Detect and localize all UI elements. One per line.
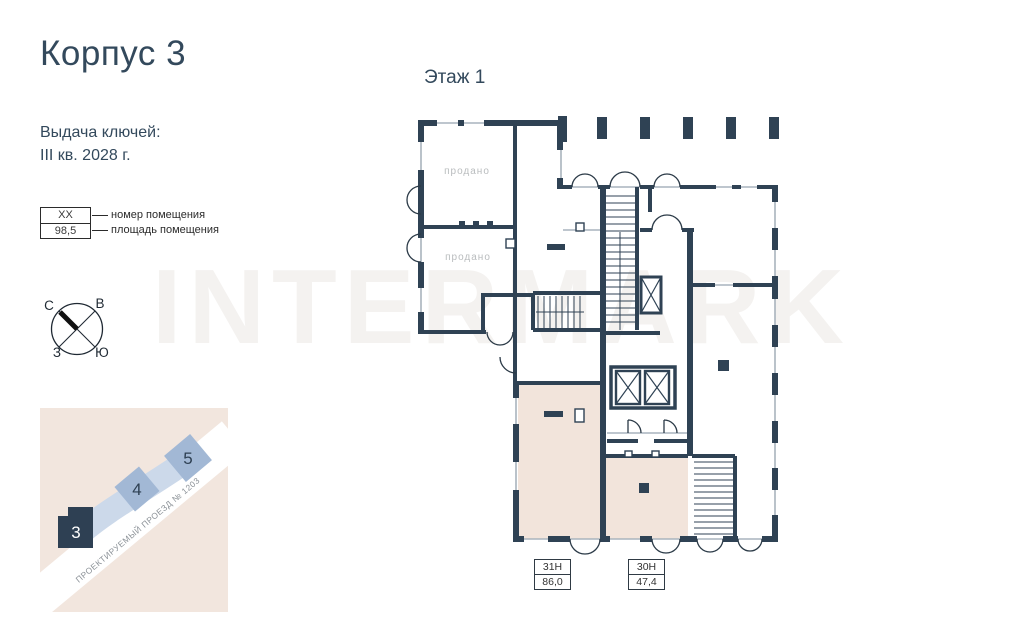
- column-icon: [683, 117, 693, 139]
- colonnade: [558, 116, 779, 142]
- column-icon: [558, 116, 567, 142]
- unit-31n-callout[interactable]: 31Н 86,0: [534, 559, 571, 590]
- sold-room-label: продано: [429, 166, 505, 177]
- elevator-shaft-a: [641, 277, 661, 313]
- column-icon: [640, 117, 650, 139]
- floor-plan: [0, 0, 1015, 632]
- elevator-bank: [611, 367, 675, 408]
- stairs-west-core: [536, 296, 584, 329]
- unit-31n-number: 31Н: [535, 560, 570, 575]
- column-icon: [726, 117, 736, 139]
- unit-30n-area: 47,4: [629, 575, 664, 589]
- stairs-north-core: [604, 196, 636, 330]
- unit-31n-area: 86,0: [535, 575, 570, 589]
- unit-30n-room[interactable]: [606, 458, 688, 539]
- column-icon: [597, 117, 607, 139]
- unit-31n-room[interactable]: [518, 383, 603, 539]
- sold-room-label: продано: [430, 252, 506, 263]
- unit-30n-callout[interactable]: 30Н 47,4: [628, 559, 665, 590]
- unit-30n-number: 30Н: [629, 560, 664, 575]
- page: Корпус 3 Выдача ключей: III кв. 2028 г. …: [0, 0, 1015, 632]
- column-icon: [769, 117, 779, 139]
- stairs-southeast: [694, 462, 733, 534]
